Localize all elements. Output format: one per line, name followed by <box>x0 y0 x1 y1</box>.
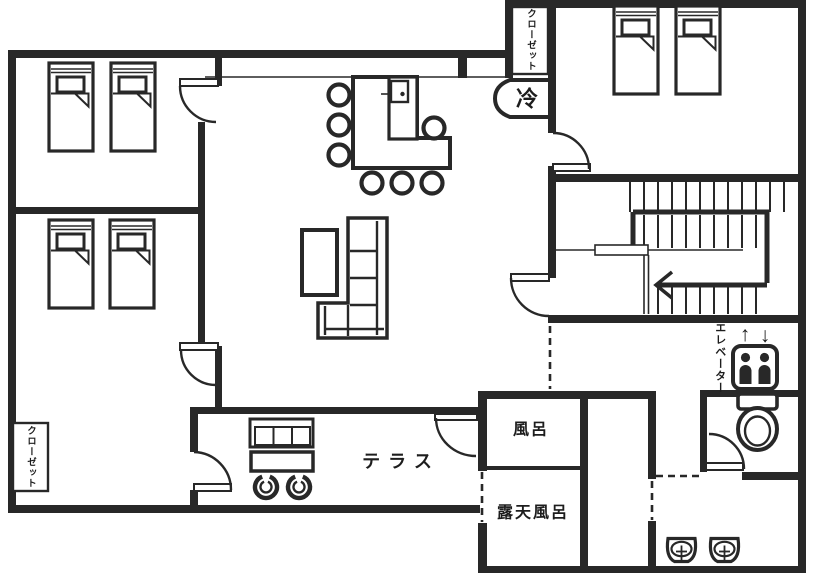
elevator-label: エレベーター <box>713 322 725 394</box>
stove-knob <box>400 92 404 96</box>
terrace-chairs <box>255 477 310 498</box>
door-bedroom-top-right <box>553 133 590 171</box>
elevator-up-arrow: ↑ <box>740 324 751 346</box>
refrigerator-label: 冷 <box>516 87 538 110</box>
stairs <box>556 182 784 314</box>
washbasin <box>667 539 695 562</box>
door-bedroom-mid-left <box>180 343 218 385</box>
floorplan: クローゼット クローゼット 冷 風呂 露天風呂 テラス エレベーター ↑ ↓ <box>0 0 814 582</box>
elevator-down-arrow: ↓ <box>760 325 771 347</box>
coffee-table <box>302 230 337 295</box>
closet-left-label: クローゼット <box>25 426 35 489</box>
toilet-fixture <box>738 394 777 450</box>
door-living-to-terrace <box>435 414 477 456</box>
bed <box>49 220 93 308</box>
closet-top-label: クローゼット <box>525 9 535 72</box>
bed <box>49 63 93 151</box>
door-living-to-hall <box>511 274 549 316</box>
washbasins <box>667 539 738 562</box>
bed <box>676 6 720 94</box>
bed <box>110 220 154 308</box>
terrace-table <box>251 452 313 471</box>
floorplan-drawing <box>0 0 814 582</box>
door-bedroom-top-left <box>180 79 218 122</box>
washbasin <box>710 539 738 562</box>
door-terrace-left <box>194 452 231 491</box>
open-air-bath-label: 露天風呂 <box>497 506 569 523</box>
bed <box>111 63 155 151</box>
terrace-bench <box>250 419 313 447</box>
bed <box>614 6 658 94</box>
terrace-label: テラス <box>362 453 440 472</box>
elevator-icon <box>733 346 777 389</box>
bath-label: 風呂 <box>513 423 549 440</box>
living-room-furniture <box>302 218 387 338</box>
terrace-furniture <box>250 419 313 498</box>
